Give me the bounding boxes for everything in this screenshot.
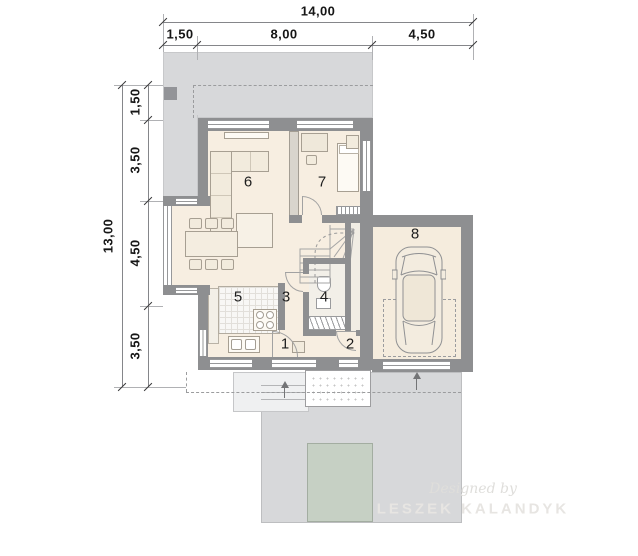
lawn-patch — [307, 443, 373, 522]
window — [362, 141, 371, 191]
garage-arrow-icon — [416, 374, 417, 390]
window-kitchen-bottom — [210, 359, 252, 368]
extension-line — [197, 36, 198, 60]
burner-icon — [266, 321, 274, 329]
dim-height-seg1: 1,50 — [128, 89, 143, 116]
wardrobe-bedroom — [301, 133, 328, 152]
room-label-3: 3 — [282, 289, 290, 306]
extension-line — [140, 306, 163, 307]
floor-plan: 1 2 3 4 5 6 7 8 14,00 1,50 8,00 4,50 13,… — [0, 0, 638, 556]
dining-chair — [205, 218, 218, 229]
dimension-line-width-segments — [163, 45, 473, 46]
dim-height-seg2: 3,50 — [128, 147, 143, 174]
stair-railing — [336, 206, 362, 215]
burner-icon — [256, 311, 264, 319]
room-label-4: 4 — [320, 289, 328, 306]
extension-line — [140, 120, 163, 121]
burner-icon — [256, 321, 264, 329]
terrace-left — [163, 115, 198, 197]
roof-outline-dashed-top-v — [193, 85, 194, 118]
entry-arrow-icon — [284, 383, 285, 398]
dining-chair — [221, 259, 234, 270]
room-label-7: 7 — [318, 174, 326, 191]
wall-hall-bottom — [303, 330, 336, 336]
window-bay-left — [163, 206, 172, 285]
wall-hall-bottom — [356, 330, 373, 336]
porch-paving — [310, 375, 366, 402]
wardrobe-hangers — [307, 316, 346, 330]
room-label-8: 8 — [411, 226, 419, 243]
wall-garage-right — [461, 215, 473, 372]
extension-line — [372, 36, 373, 60]
room-label-6: 6 — [244, 174, 252, 191]
roof-outline-dashed-bottom-v — [186, 372, 187, 392]
wall-bedroom-bottom — [322, 215, 360, 223]
car — [392, 243, 446, 357]
dim-width-seg3: 4,50 — [409, 27, 436, 42]
dim-width-seg2: 8,00 — [271, 27, 298, 42]
room-label-5: 5 — [234, 289, 242, 306]
watermark-author: LESZEK KALANDYK — [377, 501, 570, 518]
extension-line — [140, 201, 163, 202]
sink-basin — [231, 339, 242, 350]
roof-outline-dashed-bottom — [186, 392, 461, 393]
wall-bedroom-bottom — [289, 215, 302, 223]
roof-outline-dashed-top — [193, 85, 373, 86]
entrance-door-opening — [272, 359, 316, 368]
window — [297, 120, 353, 129]
entry-porch — [305, 370, 371, 407]
window-bay-bottom — [176, 287, 197, 294]
bed — [337, 143, 359, 192]
dim-width-seg1: 1,50 — [167, 27, 194, 42]
bedroom-chair — [306, 155, 317, 165]
dim-height-seg3: 4,50 — [128, 240, 143, 267]
dim-total-height: 13,00 — [101, 219, 116, 254]
wall — [198, 118, 208, 206]
garage-door-opening — [383, 361, 450, 370]
window — [208, 120, 269, 129]
dimension-line-height-segments — [148, 85, 149, 387]
window-bay-top — [176, 198, 197, 205]
dimension-line-total-height — [122, 85, 123, 387]
wall-wc-left — [303, 292, 309, 330]
dining-chair — [189, 259, 202, 270]
room-label-2: 2 — [346, 336, 354, 353]
room-label-1: 1 — [281, 336, 289, 353]
wall — [360, 227, 373, 359]
dim-height-seg4: 3,50 — [128, 333, 143, 360]
window-kitchen-left — [199, 330, 207, 356]
tv-console — [224, 132, 269, 139]
dining-chair — [189, 218, 202, 229]
dining-chair — [205, 259, 218, 270]
partition-living-bedroom — [289, 131, 299, 217]
dining-table — [185, 231, 238, 257]
bedroom-cabinet — [346, 135, 359, 149]
wall-wc-right — [345, 222, 351, 332]
dimension-line-total-width — [163, 22, 473, 23]
burner-icon — [266, 311, 274, 319]
window-room2 — [339, 359, 358, 368]
dim-total-width: 14,00 — [301, 4, 336, 19]
terrace-post — [164, 87, 177, 100]
wall-under-stairs — [303, 258, 351, 264]
extension-line — [114, 387, 186, 388]
sink-basin — [245, 339, 256, 350]
watermark-designed-by: Designed by — [429, 481, 517, 497]
dining-chair — [221, 218, 234, 229]
coffee-table — [236, 213, 273, 248]
